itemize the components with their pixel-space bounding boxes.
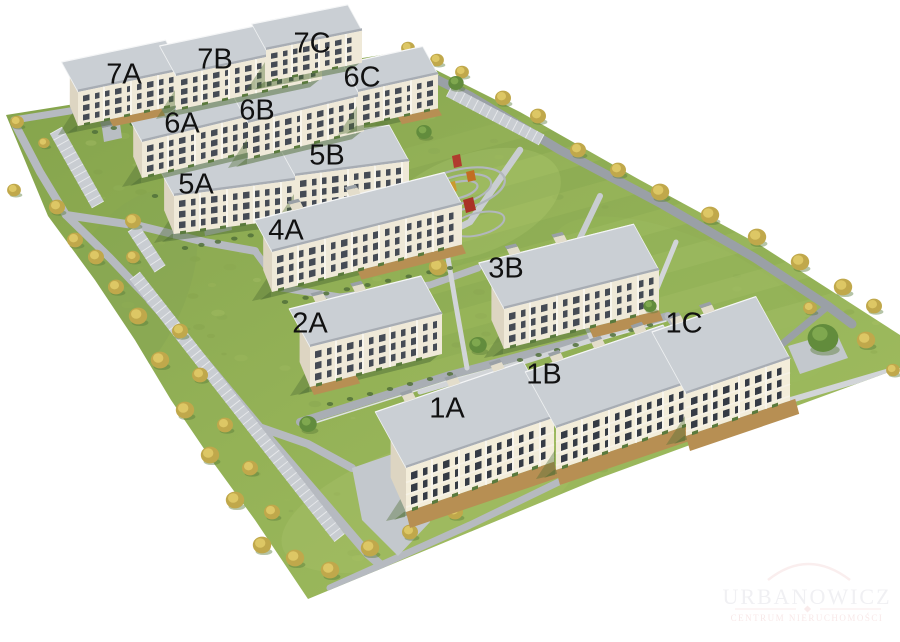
svg-text:1B: 1B [526,359,561,391]
svg-text:6B: 6B [239,95,274,127]
svg-text:7B: 7B [197,44,232,76]
svg-text:7C: 7C [293,28,330,60]
svg-text:5B: 5B [309,140,344,172]
svg-text:6C: 6C [343,62,380,94]
svg-text:URBANOWICZ: URBANOWICZ [722,584,891,609]
svg-text:4A: 4A [268,215,304,247]
svg-text:5A: 5A [178,169,214,201]
svg-text:3B: 3B [488,253,523,285]
svg-text:7A: 7A [106,59,142,91]
svg-text:6A: 6A [164,108,200,140]
svg-text:2A: 2A [292,308,328,340]
svg-text:1A: 1A [429,393,465,425]
svg-text:CENTRUM NIERUCHOMOŚCI: CENTRUM NIERUCHOMOŚCI [731,613,884,623]
svg-text:1C: 1C [665,308,702,340]
